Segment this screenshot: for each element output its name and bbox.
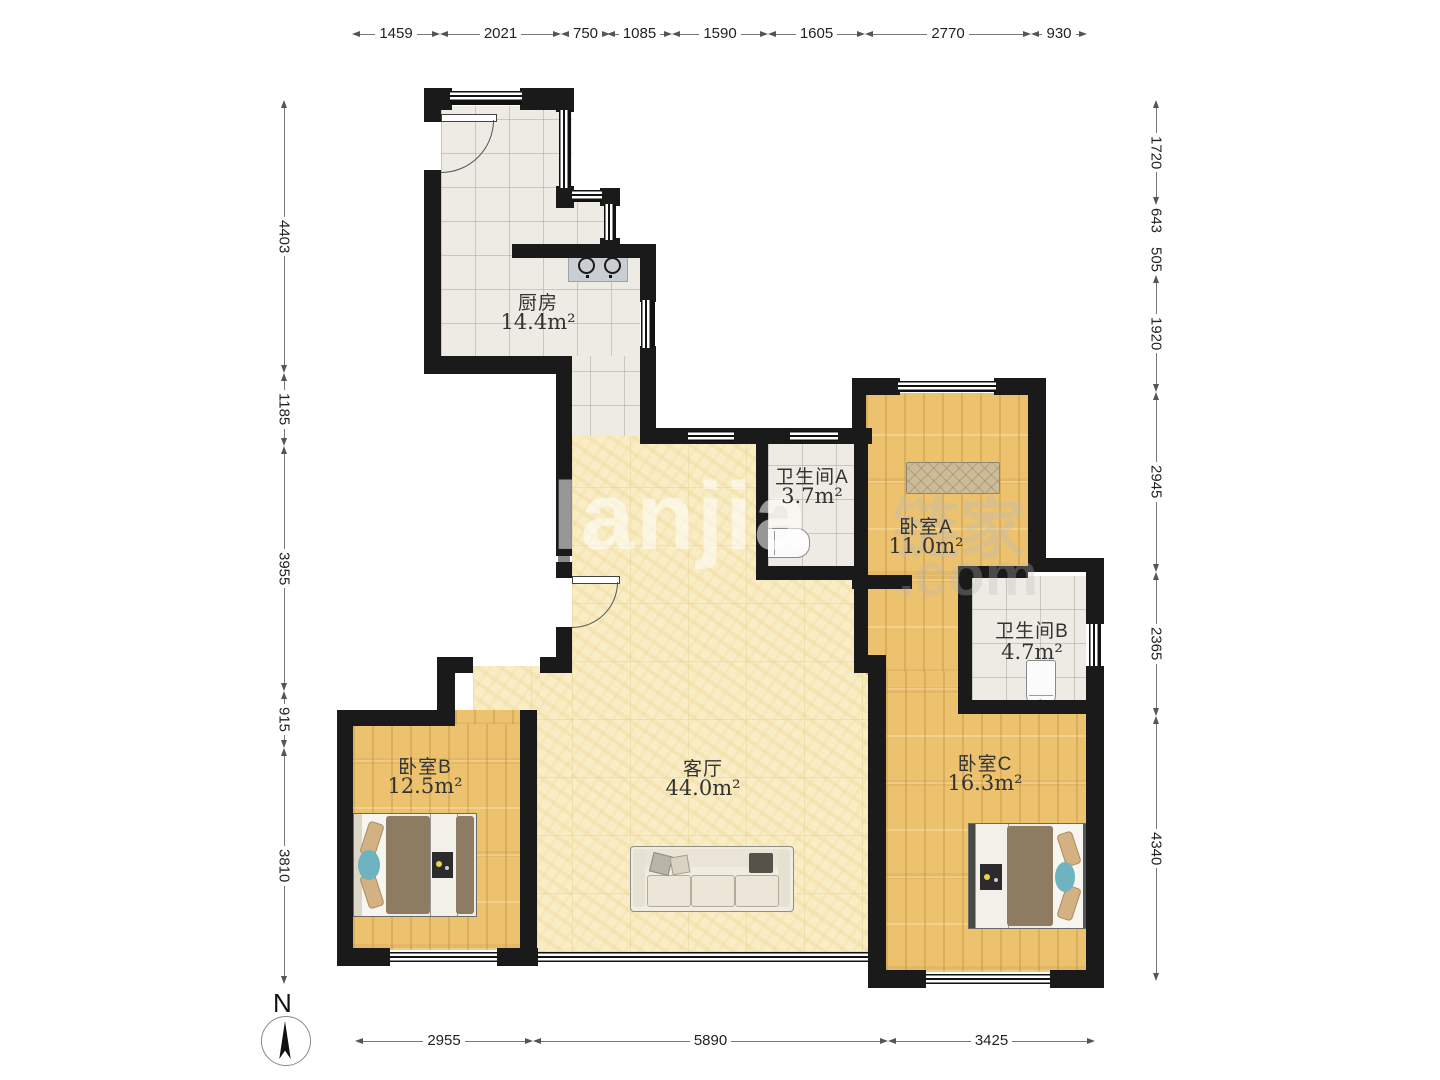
room-area-bedroom-b: 12.5m² <box>365 774 485 798</box>
sofa <box>630 846 794 912</box>
dim-bottom-1: 2955 <box>355 1033 533 1049</box>
bed-b <box>353 813 477 917</box>
north-label: N <box>273 988 292 1019</box>
dim-bottom-3: 3425 <box>888 1033 1095 1049</box>
dim-top-5: 1590 <box>672 26 768 42</box>
dim-left-2: 1185 <box>276 373 292 446</box>
wall <box>520 710 537 966</box>
wall <box>337 948 390 966</box>
throw-pillow <box>670 855 691 876</box>
room-area-bathroom-a: 3.7m² <box>752 484 872 508</box>
exterior-notch <box>572 88 706 190</box>
dim-left-1: 4403 <box>276 100 292 373</box>
armrest <box>633 849 645 907</box>
window <box>538 952 868 962</box>
window <box>926 974 1050 984</box>
duvet <box>456 816 474 914</box>
window <box>390 952 497 962</box>
dim-top-8: 930 <box>1031 26 1087 42</box>
dim-left-5: 3810 <box>276 748 292 984</box>
knob-dot <box>609 275 612 278</box>
throw-pillow <box>649 852 673 876</box>
wall <box>868 673 886 973</box>
dim-right-1: 1720 <box>1148 100 1164 205</box>
wall <box>854 582 868 666</box>
window <box>790 431 838 441</box>
wall <box>556 88 574 112</box>
wall <box>337 710 455 726</box>
window <box>559 110 571 188</box>
wall <box>424 170 441 358</box>
wall <box>520 88 560 110</box>
dim-top-2: 2021 <box>440 26 561 42</box>
room-area-bathroom-b: 4.7m² <box>972 640 1092 664</box>
wall <box>337 710 353 966</box>
room-area-bedroom-c: 16.3m² <box>925 771 1045 795</box>
dim-top-7: 2770 <box>865 26 1031 42</box>
dim-right-6: 2365 <box>1148 572 1164 716</box>
cushion <box>358 850 380 880</box>
dim-right-3: 505 <box>1148 244 1164 275</box>
window <box>641 300 655 348</box>
wall <box>540 657 572 673</box>
room-area-living-room: 44.0m² <box>643 776 763 800</box>
exterior-notch <box>616 190 682 246</box>
window <box>688 431 734 441</box>
bed-c <box>968 823 1090 929</box>
indicator-dot <box>436 861 442 867</box>
toilet-tank-line <box>1029 695 1053 696</box>
dim-right-2: 643 <box>1148 205 1164 244</box>
window <box>572 190 602 202</box>
window <box>898 381 996 392</box>
seat-cushion <box>647 875 691 907</box>
indicator-dot <box>994 878 998 882</box>
seat-cushion <box>735 875 779 907</box>
duvet <box>1007 826 1053 926</box>
dim-right-5: 2945 <box>1148 392 1164 572</box>
dim-left-4: 915 <box>276 691 292 748</box>
throw-pillow <box>749 853 773 873</box>
dim-top-6: 1605 <box>768 26 865 42</box>
wall <box>424 356 572 374</box>
wall <box>958 700 1088 714</box>
burner-icon <box>578 257 595 274</box>
dim-top-1: 1459 <box>352 26 440 42</box>
dim-bottom-2: 5890 <box>533 1033 888 1049</box>
dim-left-3: 3955 <box>276 446 292 691</box>
seat-cushion <box>691 875 735 907</box>
dim-top-4: 1085 <box>607 26 672 42</box>
floor-living-room <box>473 666 540 714</box>
window <box>604 204 616 240</box>
duvet <box>386 816 430 914</box>
tv-panel <box>432 852 453 878</box>
wall-counter <box>512 244 642 258</box>
tv-panel <box>980 864 1002 890</box>
dim-right-4: 1920 <box>1148 275 1164 392</box>
knob-dot <box>586 275 589 278</box>
armrest <box>778 849 790 907</box>
wall <box>640 244 656 302</box>
window <box>450 91 522 105</box>
dim-top-3: 750 <box>561 26 607 42</box>
dim-right-7: 4340 <box>1148 716 1164 981</box>
floor-plan: lanjia 链家 .com 厨房 14.4m² 卫生间A 3.7m² 卧室A … <box>0 0 1440 1080</box>
burner-icon <box>604 257 621 274</box>
wall <box>497 948 538 966</box>
wall <box>556 627 572 659</box>
floor-living-room <box>537 666 572 952</box>
room-area-bedroom-a: 11.0m² <box>866 534 986 558</box>
indicator-dot <box>445 866 449 870</box>
wall <box>1086 700 1104 988</box>
cushion <box>1055 862 1075 892</box>
wall <box>424 108 441 122</box>
room-label-bathroom-b: 卫生间B <box>972 616 1092 643</box>
wall <box>854 655 886 673</box>
indicator-dot <box>984 874 990 880</box>
room-area-kitchen: 14.4m² <box>478 310 598 334</box>
wall <box>424 88 452 110</box>
